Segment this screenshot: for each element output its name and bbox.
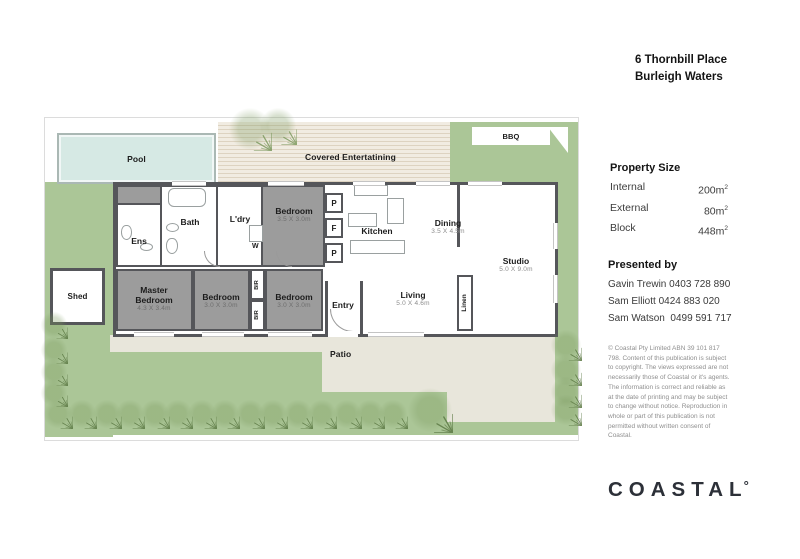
kitchen-sink-icon [354, 185, 388, 196]
kitchen-bench [350, 240, 405, 254]
stove-icon [387, 198, 404, 224]
window [172, 181, 206, 186]
size-label: Internal [610, 179, 645, 200]
size-value: 80m2 [704, 200, 728, 221]
agent-contact: Sam Watson 0499 591 717 [608, 310, 732, 327]
property-size-section: Property Size Internal 200m2 External 80… [610, 162, 728, 241]
property-address: 6 Thornbill Place Burleigh Waters [635, 52, 727, 86]
toilet-icon [166, 238, 178, 254]
ens-label: Ens [131, 236, 147, 246]
bedroom2-label: Bedroom 3.5 X 3.0m [275, 206, 312, 224]
agent-contact: Gavin Trewin 0403 728 890 [608, 276, 732, 293]
size-value: 448m2 [698, 220, 728, 241]
front-door-arc [330, 309, 353, 332]
bbq-area: BBQ [472, 127, 550, 145]
tree-icon [407, 387, 453, 433]
studio-wall [457, 185, 460, 247]
window [268, 181, 304, 186]
size-label: External [610, 200, 649, 221]
coastal-logo: COASTAL° [608, 478, 753, 502]
property-size-heading: Property Size [610, 162, 728, 174]
info-panel: 6 Thornbill Place Burleigh Waters Proper… [600, 0, 800, 559]
pool-terrace: Pool [45, 122, 218, 182]
size-value: 200m2 [698, 179, 728, 200]
address-line2: Burleigh Waters [635, 69, 727, 86]
tree-icon [40, 311, 68, 339]
entry-wall [325, 281, 328, 334]
basin-icon [166, 223, 179, 232]
pantry-box: P [325, 193, 343, 213]
property-size-row: External 80m2 [610, 200, 728, 221]
pool-label: Pool [127, 154, 146, 164]
window [134, 332, 174, 337]
bbq-label: BBQ [503, 132, 520, 141]
agent-contact: Sam Elliott 0424 883 020 [608, 293, 732, 310]
bedroom4-label: Bedroom 3.0 X 3.0m [275, 292, 312, 310]
copyright-disclaimer: © Coastal Pty Limited ABN 39 101 817 798… [608, 344, 730, 441]
front-door-gap [328, 331, 358, 337]
tree-icon [40, 379, 68, 407]
shed-label: Shed [68, 292, 88, 301]
kitchen-label: Kitchen [361, 226, 392, 236]
window [468, 181, 502, 186]
washer-icon [249, 225, 263, 242]
living-label: Living 5.0 X 4.6m [396, 290, 429, 308]
patio-label: Patio [330, 349, 351, 359]
fridge-box: F [325, 218, 343, 238]
pantry-box: P [325, 243, 343, 263]
window [202, 332, 244, 337]
presented-by-section: Presented by Gavin Trewin 0403 728 890 S… [608, 259, 732, 327]
robe [116, 185, 162, 205]
bir-label: BIR [254, 280, 260, 289]
kitchen-island [348, 213, 377, 227]
window [553, 275, 558, 303]
logo-degree-icon: ° [744, 478, 749, 493]
size-label: Block [610, 220, 636, 241]
property-size-row: Internal 200m2 [610, 179, 728, 200]
bath-label: Bath [181, 217, 200, 227]
room-bedroom2 [261, 185, 325, 267]
site-plan: Pool BBQ Covered Entertatining Patio She… [45, 118, 578, 440]
floorplan-page: Pool BBQ Covered Entertatining Patio She… [0, 0, 800, 559]
tree-icon [378, 399, 408, 429]
property-size-row: Block 448m2 [610, 220, 728, 241]
window [416, 181, 450, 186]
linen-label: Linen [461, 294, 469, 311]
entry-label: Entry [332, 300, 354, 310]
dining-label: Dining 3.5 X 4.5m [431, 218, 464, 236]
master-bedroom-label: Master Bedroom 4.3 X 3.4m [129, 285, 179, 313]
washer-label: W [252, 243, 259, 250]
window [553, 223, 558, 249]
covered-entertaining-label: Covered Entertatining [305, 152, 396, 162]
pool: Pool [57, 133, 216, 184]
entry-wall [360, 281, 363, 334]
window [353, 181, 385, 186]
address-line1: 6 Thornbill Place [635, 52, 727, 69]
tree-icon [550, 394, 582, 426]
house: P F P [113, 182, 558, 337]
patio-area [447, 352, 555, 422]
bathtub-icon [168, 188, 206, 207]
presented-by-heading: Presented by [608, 259, 732, 271]
palm-icon [259, 107, 297, 145]
bedroom3-label: Bedroom 3.0 X 3.0m [202, 292, 239, 310]
window [368, 332, 424, 337]
studio-label: Studio 5.0 X 9.0m [499, 256, 532, 274]
window [268, 332, 312, 337]
bir-label: BIR [254, 310, 260, 319]
laundry-label: L'dry [230, 214, 250, 224]
